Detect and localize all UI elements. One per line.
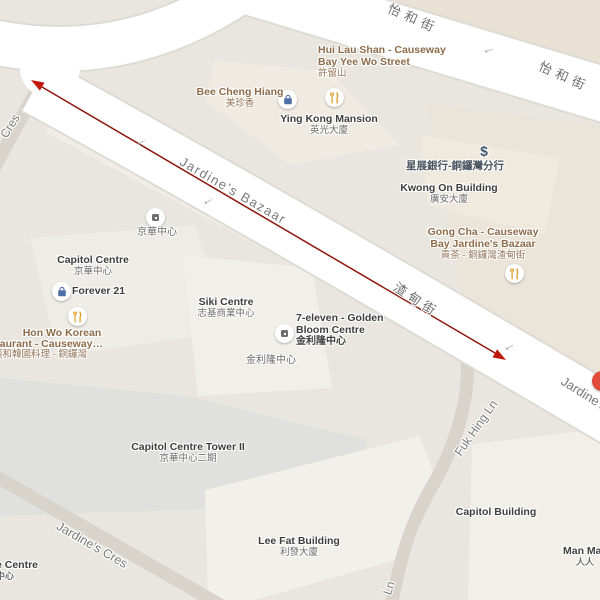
poi-label-dbs-bank[interactable]: 星展銀行-銅鑼灣分行 (406, 160, 504, 172)
building-label-man-man[interactable]: Man Man 人人 (563, 545, 600, 567)
building-label-ying-kong-mansion[interactable]: Ying Kong Mansion 英光大廈 (280, 113, 378, 136)
building-label-capitol-centre[interactable]: Capitol Centre 京華中心 (57, 254, 129, 277)
restaurant-utensils-icon[interactable] (68, 307, 87, 326)
building-square-icon[interactable] (275, 324, 294, 343)
poi-label-gong-cha[interactable]: Gong Cha - Causeway Bay Jardine's Bazaar… (428, 226, 539, 261)
building-label-kwong-on[interactable]: Kwong On Building 廣安大廈 (400, 182, 497, 205)
shopping-bag-icon[interactable] (52, 282, 71, 301)
building-label-siki-centre[interactable]: Siki Centre 志基商業中心 (197, 296, 254, 319)
poi-label-forever21[interactable]: Forever 21 (72, 285, 125, 297)
poi-label-seven-eleven[interactable]: 7-eleven - Golden Bloom Centre 金利隆中心 (296, 312, 384, 348)
building-label-capitol-building[interactable]: Capitol Building (456, 506, 537, 518)
restaurant-utensils-icon[interactable] (505, 264, 524, 283)
building-square-icon[interactable] (146, 208, 165, 227)
building-label-lee-fat[interactable]: Lee Fat Building 利發大廈 (258, 535, 340, 558)
poi-label-hon-wo-line3[interactable]: 漢和韓國料理 - 銅鑼灣 (0, 349, 87, 360)
poi-label-golden-bloom-small[interactable]: 金利隆中心 (246, 355, 296, 367)
map-canvas[interactable]: ← ← ← ← 怡和街 怡和街 Jardine's Bazaar 渣甸街 Jar… (0, 0, 600, 600)
dollar-sign-icon[interactable]: $ (480, 143, 488, 159)
restaurant-utensils-icon[interactable] (325, 88, 344, 107)
poi-label-bee-cheng-hiang[interactable]: Bee Cheng Hiang 美珍香 (197, 86, 284, 109)
building-label-edge-centre[interactable]: e Centre 中心 (0, 559, 38, 581)
building-label-capitol-tower2[interactable]: Capitol Centre Tower II 京華中心二期 (131, 441, 245, 464)
poi-label-king-wah-centre[interactable]: 京華中心 (137, 227, 177, 239)
poi-label-hui-lau-shan[interactable]: Hui Lau Shan - Causeway Bay Yee Wo Stree… (318, 44, 446, 79)
